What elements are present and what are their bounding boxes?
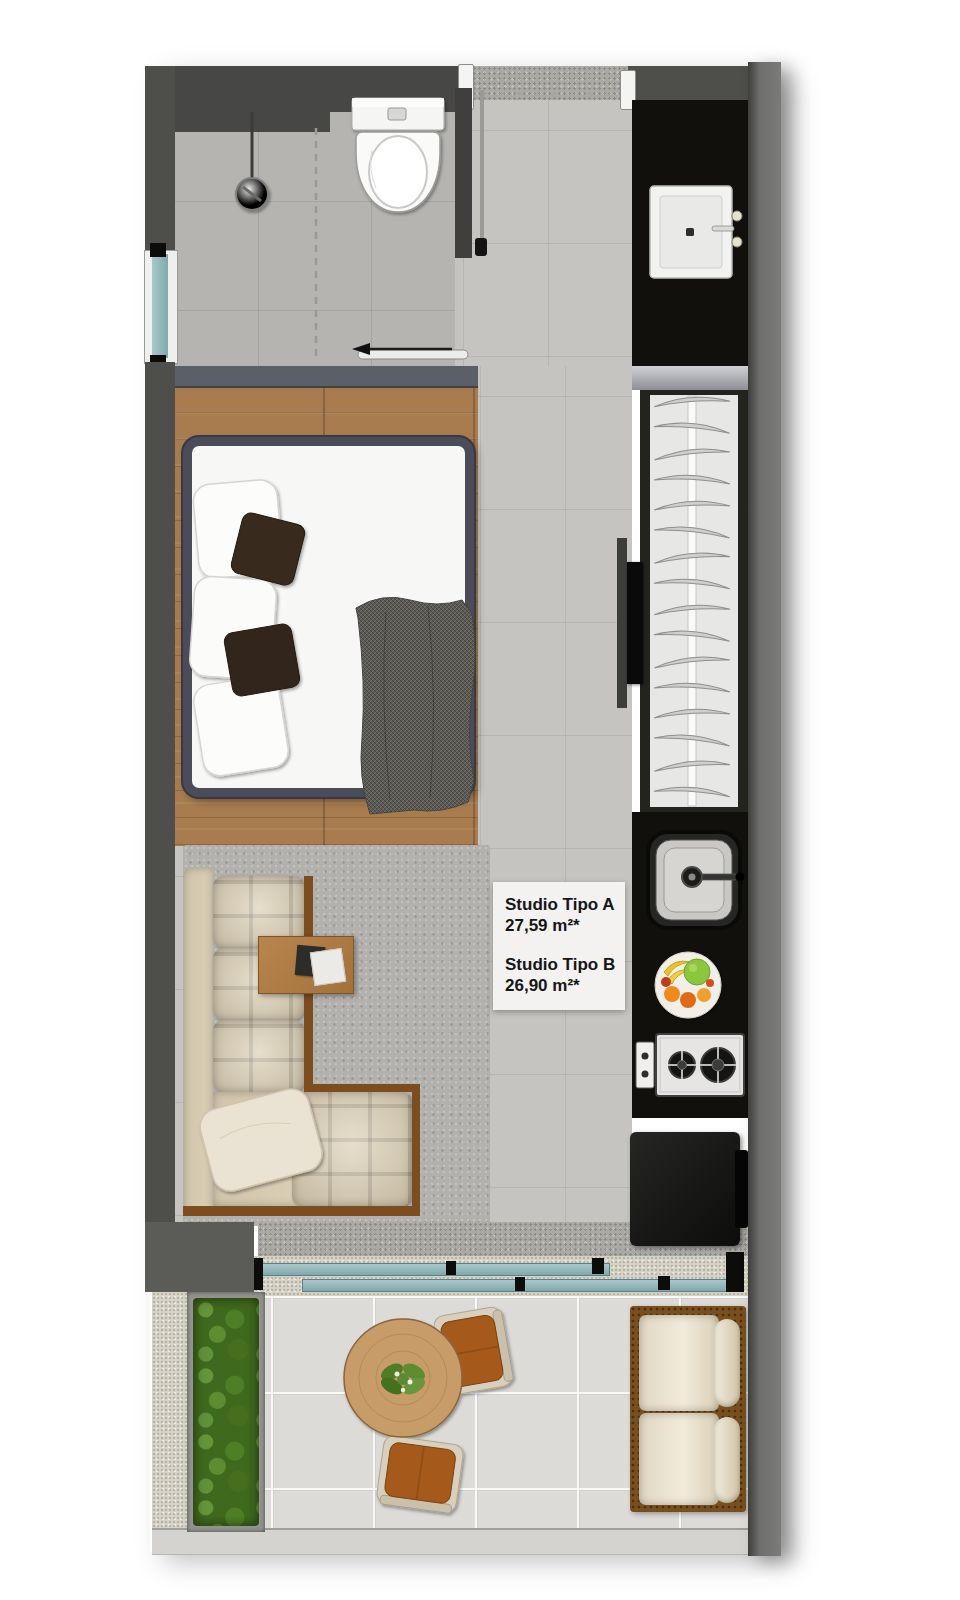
- door-stop: [515, 1277, 525, 1291]
- corridor-floor: [472, 366, 632, 1226]
- planter-icon: [193, 1298, 259, 1526]
- label-spacer: [505, 936, 613, 954]
- wall-bedroom-north: [175, 366, 478, 388]
- unit-a-area: 27,59 m²*: [505, 915, 613, 936]
- wall-bathroom-hall-stub: [455, 88, 472, 258]
- sofa-wood-trim: [313, 1084, 420, 1092]
- door-stop: [658, 1276, 670, 1290]
- wardrobe-frame: [640, 390, 748, 395]
- counter-edge-strip: [632, 366, 748, 390]
- wall-left-upper: [145, 66, 175, 250]
- sofa-backrest: [183, 868, 213, 1216]
- sofa-corner-seat: [213, 1092, 304, 1206]
- entry-door-icon: [480, 90, 484, 256]
- sofa-chaise-cushion: [292, 1092, 412, 1206]
- floor-plan-canvas: Studio Tipo A 27,59 m²* Studio Tipo B 26…: [0, 0, 960, 1600]
- sofa-cushion: [213, 1020, 304, 1092]
- wall-top-bathroom: [145, 66, 472, 112]
- bench-roll-pillow: [714, 1417, 740, 1503]
- wall-right-outer: [748, 62, 781, 1556]
- entry-threshold: [472, 66, 628, 100]
- table-decor-paper: [310, 948, 346, 986]
- wall-left-lower: [145, 362, 175, 1292]
- unit-b-area: 26,90 m²*: [505, 975, 613, 996]
- refrigerator-icon: [630, 1132, 740, 1246]
- double-bed-icon: [183, 437, 474, 797]
- unit-b-name: Studio Tipo B: [505, 954, 613, 975]
- unit-a-name: Studio Tipo A: [505, 894, 613, 915]
- door-stop: [592, 1258, 604, 1274]
- wardrobe: [640, 390, 748, 812]
- sofa-wood-trim: [412, 1084, 420, 1216]
- sofa-wood-trim: [183, 1206, 420, 1216]
- door-stop: [446, 1261, 456, 1275]
- tv-bracket: [617, 538, 627, 708]
- unit-area-label: Studio Tipo A 27,59 m²* Studio Tipo B 26…: [493, 882, 625, 1010]
- wardrobe-frame: [738, 390, 748, 812]
- window-icon: [152, 254, 168, 358]
- wall-top-kitchen: [628, 66, 748, 100]
- sliding-glass-pane: [258, 1263, 610, 1276]
- bench-cushion: [639, 1413, 719, 1505]
- wall-living-balcony: [145, 1222, 254, 1292]
- kitchen-counter-upper: [632, 100, 748, 366]
- door-handle: [475, 238, 487, 256]
- window-jamb: [150, 243, 166, 257]
- wall-tv-icon: [627, 562, 643, 684]
- bathroom-floor: [175, 100, 472, 366]
- refrigerator-handle: [735, 1150, 748, 1228]
- bench-cushion: [639, 1315, 719, 1411]
- kitchen-counter-lower: [632, 812, 748, 1118]
- bench-roll-pillow: [714, 1319, 740, 1407]
- balcony-railing: [152, 1528, 748, 1555]
